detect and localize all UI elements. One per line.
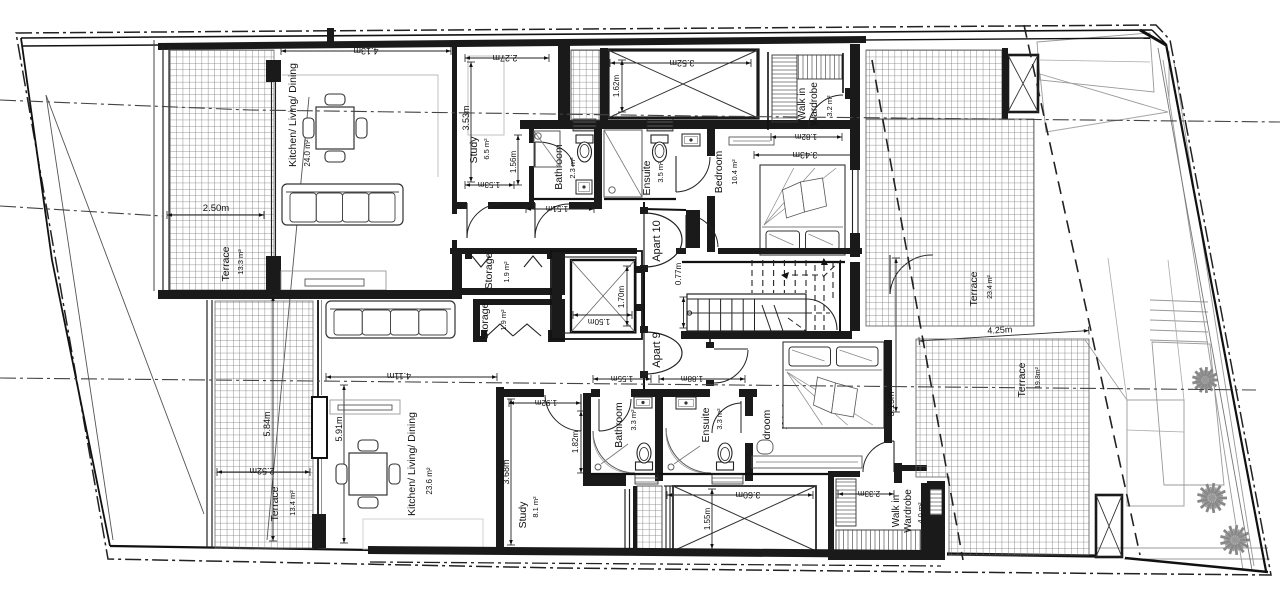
- svg-text:1.70m: 1.70m: [617, 286, 626, 309]
- svg-text:Wardrobe: Wardrobe: [903, 489, 914, 533]
- svg-text:6.5 m²: 6.5 m²: [482, 138, 491, 160]
- svg-text:1.82m: 1.82m: [795, 132, 818, 141]
- svg-text:2.50m: 2.50m: [203, 203, 229, 214]
- svg-text:Bedroom: Bedroom: [713, 150, 725, 193]
- svg-text:Apart 10: Apart 10: [651, 220, 663, 262]
- svg-text:8.1 m²: 8.1 m²: [531, 496, 540, 518]
- svg-text:0.77m: 0.77m: [674, 263, 683, 286]
- svg-text:1.92m: 1.92m: [535, 398, 558, 407]
- svg-text:3.52m: 3.52m: [669, 58, 694, 68]
- svg-text:3.5 m²: 3.5 m²: [656, 161, 665, 183]
- svg-text:4.11m: 4.11m: [387, 371, 411, 381]
- svg-text:4.0 m²: 4.0 m²: [916, 502, 925, 524]
- svg-text:1.51m: 1.51m: [546, 204, 569, 213]
- svg-text:3.60m: 3.60m: [735, 490, 760, 500]
- svg-text:5.91m: 5.91m: [334, 416, 344, 441]
- svg-text:Wardrobe: Wardrobe: [809, 82, 820, 126]
- svg-text:19.8m²: 19.8m²: [1035, 366, 1042, 388]
- svg-text:4.25m: 4.25m: [987, 324, 1013, 336]
- svg-text:Walk in: Walk in: [891, 495, 902, 527]
- svg-text:24.0 m²: 24.0 m²: [303, 139, 312, 166]
- svg-text:3.2 m²: 3.2 m²: [825, 95, 834, 117]
- svg-text:23.4 m²: 23.4 m²: [987, 274, 994, 298]
- svg-text:1.53m: 1.53m: [478, 180, 501, 189]
- svg-text:10.4 m²: 10.4 m²: [730, 159, 739, 185]
- svg-text:1.9 m²: 1.9 m²: [499, 309, 508, 331]
- svg-text:Bathroom: Bathroom: [613, 402, 625, 448]
- svg-text:Terrace: Terrace: [269, 486, 281, 521]
- svg-text:1.55m: 1.55m: [611, 374, 634, 383]
- svg-text:3.3 m²: 3.3 m²: [715, 408, 724, 430]
- svg-text:2.52m: 2.52m: [249, 466, 274, 476]
- svg-text:Terrace: Terrace: [1016, 362, 1028, 397]
- svg-text:2.27m: 2.27m: [492, 53, 517, 63]
- svg-text:Storage: Storage: [479, 302, 491, 339]
- svg-text:13.3 m²: 13.3 m²: [236, 249, 245, 275]
- svg-text:Terrace: Terrace: [968, 271, 980, 306]
- svg-text:3.53m: 3.53m: [461, 105, 471, 130]
- svg-text:Ensuite: Ensuite: [641, 160, 653, 195]
- svg-text:1.50m: 1.50m: [588, 317, 611, 326]
- svg-text:4.13m: 4.13m: [353, 46, 378, 56]
- svg-text:Walk in: Walk in: [797, 88, 808, 120]
- svg-text:Study: Study: [468, 136, 480, 164]
- svg-text:3.43m: 3.43m: [792, 150, 817, 160]
- svg-text:Study: Study: [517, 501, 529, 529]
- svg-text:Ensuite: Ensuite: [700, 407, 712, 442]
- svg-text:5.84m: 5.84m: [262, 411, 272, 436]
- svg-text:1.88m: 1.88m: [681, 374, 704, 383]
- svg-text:1.62m: 1.62m: [612, 75, 621, 98]
- svg-text:Kitchen/ Living/ Dining: Kitchen/ Living/ Dining: [287, 63, 299, 167]
- svg-text:Storage: Storage: [483, 252, 495, 289]
- svg-text:2.3 m²: 2.3 m²: [568, 157, 577, 179]
- svg-text:Terrace: Terrace: [220, 246, 232, 281]
- svg-text:3.3 m²: 3.3 m²: [629, 409, 638, 431]
- svg-text:2.33m: 2.33m: [858, 489, 881, 498]
- svg-text:3.68m: 3.68m: [501, 459, 511, 484]
- svg-text:23.6 m²: 23.6 m²: [425, 467, 434, 494]
- svg-text:1.9 m²: 1.9 m²: [502, 261, 511, 283]
- svg-text:1.56m: 1.56m: [509, 151, 518, 174]
- svg-text:1.82m: 1.82m: [571, 431, 580, 454]
- svg-text:1.55m: 1.55m: [703, 508, 712, 531]
- svg-text:3.15m: 3.15m: [886, 391, 896, 416]
- svg-text:Apart 9: Apart 9: [651, 332, 663, 367]
- svg-text:Kitchen/ Living/ Dining: Kitchen/ Living/ Dining: [406, 412, 418, 516]
- svg-text:13.4 m²: 13.4 m²: [288, 490, 297, 516]
